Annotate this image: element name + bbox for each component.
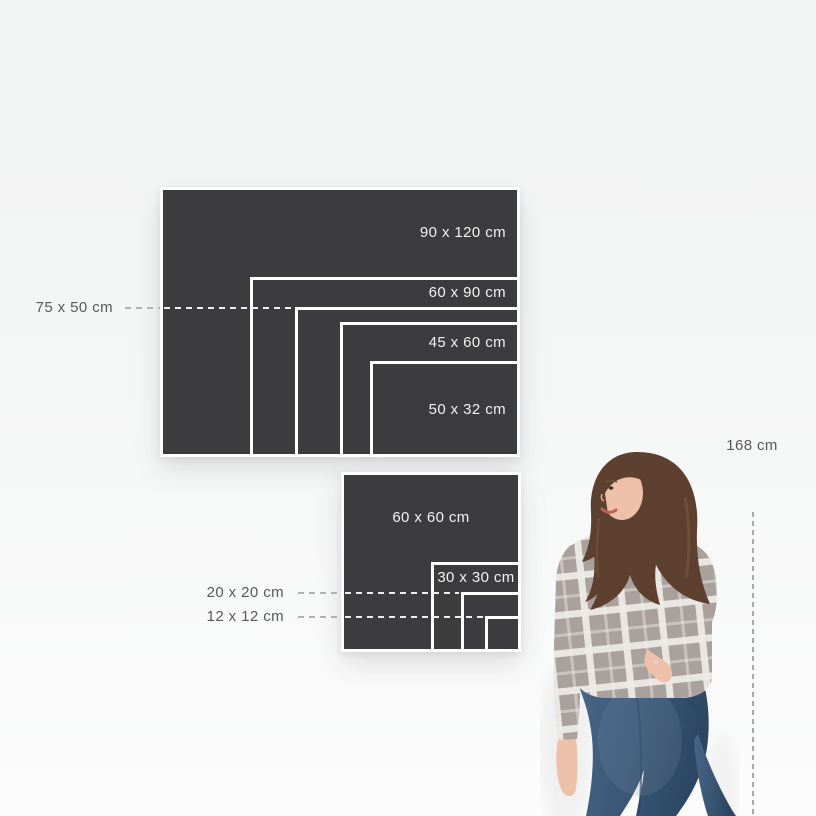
size-label-90x120: 90 x 120 cm	[420, 223, 506, 242]
eye	[609, 486, 614, 490]
dash-line-12x12-outer	[298, 616, 341, 618]
size-label-12x12: 12 x 12 cm	[207, 609, 284, 625]
person-height-dash-line	[752, 512, 754, 816]
dash-line-20x20-inner	[345, 592, 459, 594]
size-guide-canvas: 168 cm	[0, 0, 816, 816]
size-label-45x60: 45 x 60 cm	[429, 333, 506, 352]
dash-line-75x50-outer	[125, 307, 160, 309]
size-rect-12x12	[485, 616, 521, 652]
dash-line-20x20-outer	[298, 592, 341, 594]
size-label-60x60: 60 x 60 cm	[341, 508, 521, 527]
size-label-50x32: 50 x 32 cm	[429, 400, 506, 419]
dash-line-75x50-inner	[164, 307, 293, 309]
size-label-75x50: 75 x 50 cm	[36, 300, 113, 316]
size-label-30x30: 30 x 30 cm	[431, 568, 521, 587]
person-illustration	[540, 438, 740, 816]
dash-line-12x12-inner	[345, 616, 483, 618]
size-label-60x90: 60 x 90 cm	[429, 283, 506, 302]
size-label-20x20: 20 x 20 cm	[207, 585, 284, 601]
ring	[654, 660, 658, 664]
